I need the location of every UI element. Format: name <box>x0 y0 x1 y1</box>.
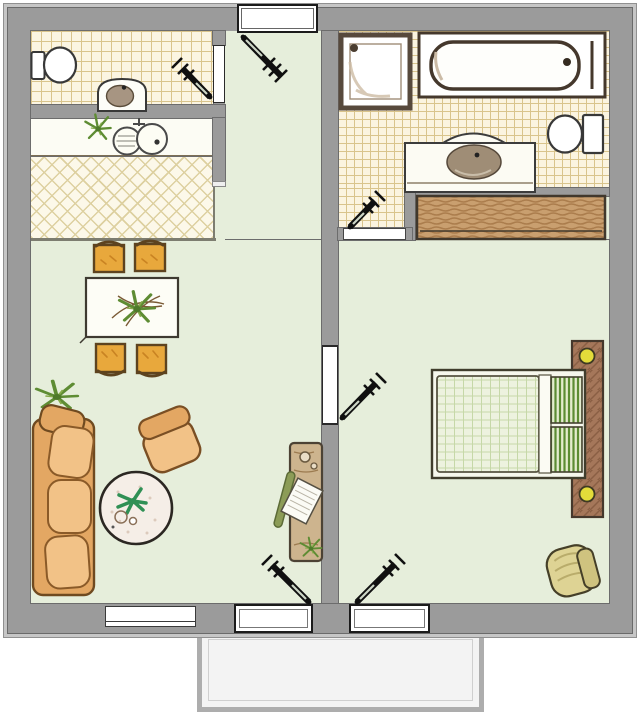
wc-sink <box>98 79 146 111</box>
door-swing-entrance <box>241 35 287 82</box>
kitchen-sink <box>114 118 168 155</box>
door-swing-bedroom-balcony <box>355 554 405 604</box>
kitchen-plant <box>85 115 110 139</box>
wardrobe <box>417 196 605 239</box>
bathtub <box>419 33 605 97</box>
living-armchair <box>135 404 206 476</box>
bathroom-toilet <box>548 115 603 153</box>
door-swing-living-balcony <box>262 555 311 604</box>
dining-chair <box>96 344 125 375</box>
wc-toilet <box>32 48 77 83</box>
door-swing-bathroom <box>348 191 385 229</box>
floor-plan: .bar{stroke:#101010;stroke-width:6;} .ba… <box>0 0 640 716</box>
bedroom-armchair <box>543 541 602 600</box>
round-rug <box>100 472 172 544</box>
shower-tray <box>341 35 410 108</box>
dining-chair <box>94 242 124 272</box>
dining-chair <box>137 345 166 376</box>
double-bed <box>432 370 585 478</box>
floor-plant <box>37 381 78 408</box>
vanity-sink <box>405 134 535 193</box>
door-swing-bedroom <box>340 373 386 420</box>
furniture-layer: .bar{stroke:#101010;stroke-width:6;} .ba… <box>0 0 640 716</box>
door-swing-wc <box>172 58 212 99</box>
dining-table <box>80 278 178 343</box>
desk <box>273 443 323 561</box>
bed-lamp-top <box>580 349 595 364</box>
sofa <box>33 403 95 595</box>
dining-chair <box>135 241 165 271</box>
bed-lamp-bottom <box>580 487 595 502</box>
